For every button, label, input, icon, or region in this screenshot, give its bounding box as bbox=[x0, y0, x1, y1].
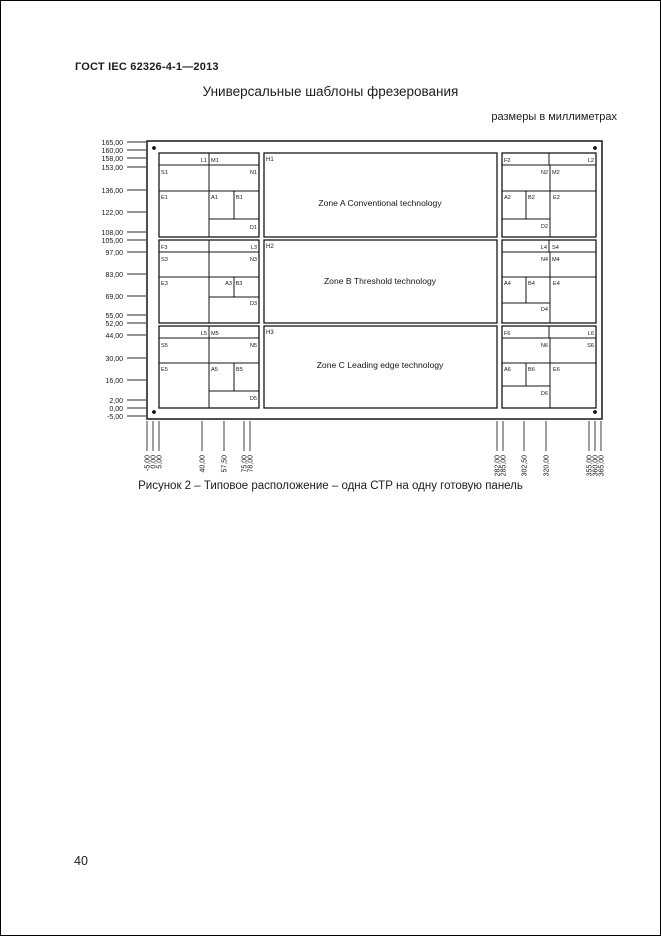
y-tick-label: 153,00 bbox=[102, 165, 124, 172]
zone-title: Zone A Conventional technology bbox=[318, 198, 442, 208]
registration-dot bbox=[152, 146, 156, 150]
y-tick-label: 160,00 bbox=[102, 148, 124, 155]
cell-label: D4 bbox=[541, 307, 548, 313]
cell-label: S4 bbox=[552, 245, 559, 251]
cell-label: A4 bbox=[504, 281, 511, 287]
y-tick-label: 52,00 bbox=[105, 321, 123, 328]
x-tick-label: 40,00 bbox=[200, 455, 207, 473]
zone-h-label: H2 bbox=[266, 244, 274, 250]
y-tick-label: 158,00 bbox=[102, 156, 124, 163]
zone-a-row: L1 M1 S1 N1 E1 A1 B1 D1 H1 Zone A Conven… bbox=[159, 153, 596, 237]
cell-label: A5 bbox=[211, 367, 218, 373]
y-tick-label: 69,00 bbox=[105, 294, 123, 301]
y-tick-label: 108,00 bbox=[102, 230, 124, 237]
y-tick-label: 105,00 bbox=[102, 238, 124, 245]
cell-label: D6 bbox=[541, 391, 548, 397]
y-tick-label: 165,00 bbox=[102, 140, 124, 147]
cell-label: A2 bbox=[504, 195, 511, 201]
zone-b-center: H2 Zone B Threshold technology bbox=[264, 240, 497, 323]
y-tick-label: 122,00 bbox=[102, 210, 124, 217]
cell-label: D3 bbox=[250, 301, 257, 307]
cell-label: N4 bbox=[541, 257, 548, 263]
cell-label: B3 bbox=[236, 281, 243, 287]
cell-label: S1 bbox=[161, 170, 168, 176]
y-tick-label: 136,00 bbox=[102, 188, 124, 195]
registration-dot bbox=[593, 410, 597, 414]
cell-label: N1 bbox=[250, 170, 257, 176]
cell-label: L2 bbox=[588, 158, 594, 164]
zone-outline bbox=[264, 153, 497, 237]
zone-c-left-block: L5 M5 S5 N5 E5 A5 B5 D5 bbox=[159, 326, 259, 408]
zone-c-center: H3 Zone C Leading edge technology bbox=[264, 326, 497, 408]
x-tick-label: 5,00 bbox=[157, 455, 164, 469]
cell-label: L5 bbox=[201, 331, 207, 337]
cell-label: E6 bbox=[553, 367, 560, 373]
figure-caption: Рисунок 2 – Типовое расположение – одна … bbox=[1, 480, 660, 492]
y-axis: 165,00 160,00 158,00 153,00 136,00 122,0… bbox=[102, 140, 146, 421]
cell-label: A3 bbox=[225, 281, 232, 287]
cell-label: M5 bbox=[211, 331, 219, 337]
zone-a-center: H1 Zone A Conventional technology bbox=[264, 153, 497, 237]
cell-label: E4 bbox=[553, 281, 560, 287]
cell-label: B2 bbox=[528, 195, 535, 201]
cell-label: M1 bbox=[211, 158, 219, 164]
cell-label: F6 bbox=[504, 331, 511, 337]
cell-label: N5 bbox=[250, 343, 257, 349]
cell-label: B5 bbox=[236, 367, 243, 373]
registration-dot bbox=[593, 146, 597, 150]
y-tick-label: -5,00 bbox=[107, 414, 123, 421]
cell-label: S3 bbox=[161, 257, 168, 263]
zone-b-row: F3 L3 S3 N3 E3 A3 B3 D3 H2 Zone B Thresh… bbox=[159, 240, 596, 323]
zone-c-row: L5 M5 S5 N5 E5 A5 B5 D5 H3 Zone C Leadin… bbox=[159, 326, 596, 408]
cell-label: B4 bbox=[528, 281, 535, 287]
x-tick-label: 365,00 bbox=[599, 455, 606, 477]
zone-b-right-block: L4 S4 N4 M4 A4 B4 E4 D4 bbox=[502, 240, 596, 323]
cell-label: M4 bbox=[552, 257, 560, 263]
page-number: 40 bbox=[74, 854, 88, 868]
x-tick-label: 285,00 bbox=[501, 455, 508, 477]
cell-label: E5 bbox=[161, 367, 168, 373]
cell-label: E1 bbox=[161, 195, 168, 201]
figure-title: Универсальные шаблоны фрезерования bbox=[1, 84, 660, 99]
cell-label: S6 bbox=[587, 343, 594, 349]
cell-label: B1 bbox=[236, 195, 243, 201]
cell-label: N2 bbox=[541, 170, 548, 176]
cell-label: D2 bbox=[541, 224, 548, 230]
cell-label: N6 bbox=[541, 343, 548, 349]
zone-h-label: H1 bbox=[266, 157, 274, 163]
cell-label: F3 bbox=[161, 245, 168, 251]
cell-label: N3 bbox=[250, 257, 257, 263]
cell-label: B6 bbox=[528, 367, 535, 373]
cell-label: D5 bbox=[250, 396, 257, 402]
y-tick-label: 97,00 bbox=[105, 250, 123, 257]
cell-label: S5 bbox=[161, 343, 168, 349]
zone-a-right-block: F2 L2 N2 M2 A2 B2 E2 D2 bbox=[502, 153, 596, 237]
cell-label: E2 bbox=[553, 195, 560, 201]
cell-label: E3 bbox=[161, 281, 168, 287]
doc-code: ГОСТ IEC 62326-4-1—2013 bbox=[75, 61, 219, 73]
x-tick-label: 320,00 bbox=[544, 455, 551, 477]
y-tick-label: 55,00 bbox=[105, 313, 123, 320]
cell-label: D1 bbox=[250, 225, 257, 231]
cell-label: A1 bbox=[211, 195, 218, 201]
zone-title: Zone B Threshold technology bbox=[324, 276, 437, 286]
zone-b-left-block: F3 L3 S3 N3 E3 A3 B3 D3 bbox=[159, 240, 259, 323]
x-tick-label: 57,50 bbox=[222, 455, 229, 473]
zone-title: Zone C Leading edge technology bbox=[317, 360, 444, 370]
cell-label: L1 bbox=[201, 158, 207, 164]
x-axis: -5,00 0,00 5,00 40,00 57,50 75,00 78,00 … bbox=[145, 421, 606, 476]
cell-label: L3 bbox=[251, 245, 257, 251]
y-tick-label: 16,00 bbox=[105, 378, 123, 385]
y-tick-label: 0,00 bbox=[109, 406, 123, 413]
x-tick-label: 302,50 bbox=[522, 455, 529, 477]
y-tick-label: 30,00 bbox=[105, 356, 123, 363]
zone-h-label: H3 bbox=[266, 330, 274, 336]
registration-dot bbox=[152, 410, 156, 414]
units-note: размеры в миллиметрах bbox=[491, 111, 617, 123]
cell-label: F2 bbox=[504, 158, 511, 164]
x-tick-label: 78,00 bbox=[248, 455, 255, 473]
zone-c-right-block: F6 L6 N6 S6 A6 B6 E6 D6 bbox=[502, 326, 596, 408]
document-page: ГОСТ IEC 62326-4-1—2013 Универсальные ша… bbox=[0, 0, 661, 936]
cell-label: M2 bbox=[552, 170, 560, 176]
y-tick-label: 2,00 bbox=[109, 398, 123, 405]
y-tick-label: 83,00 bbox=[105, 272, 123, 279]
cell-label: L6 bbox=[588, 331, 594, 337]
cell-label: L4 bbox=[541, 245, 547, 251]
zone-a-left-block: L1 M1 S1 N1 E1 A1 B1 D1 bbox=[159, 153, 259, 237]
cell-label: A6 bbox=[504, 367, 511, 373]
block-outline bbox=[502, 153, 596, 237]
y-tick-label: 44,00 bbox=[105, 333, 123, 340]
milling-template-diagram: 165,00 160,00 158,00 153,00 136,00 122,0… bbox=[81, 131, 626, 491]
